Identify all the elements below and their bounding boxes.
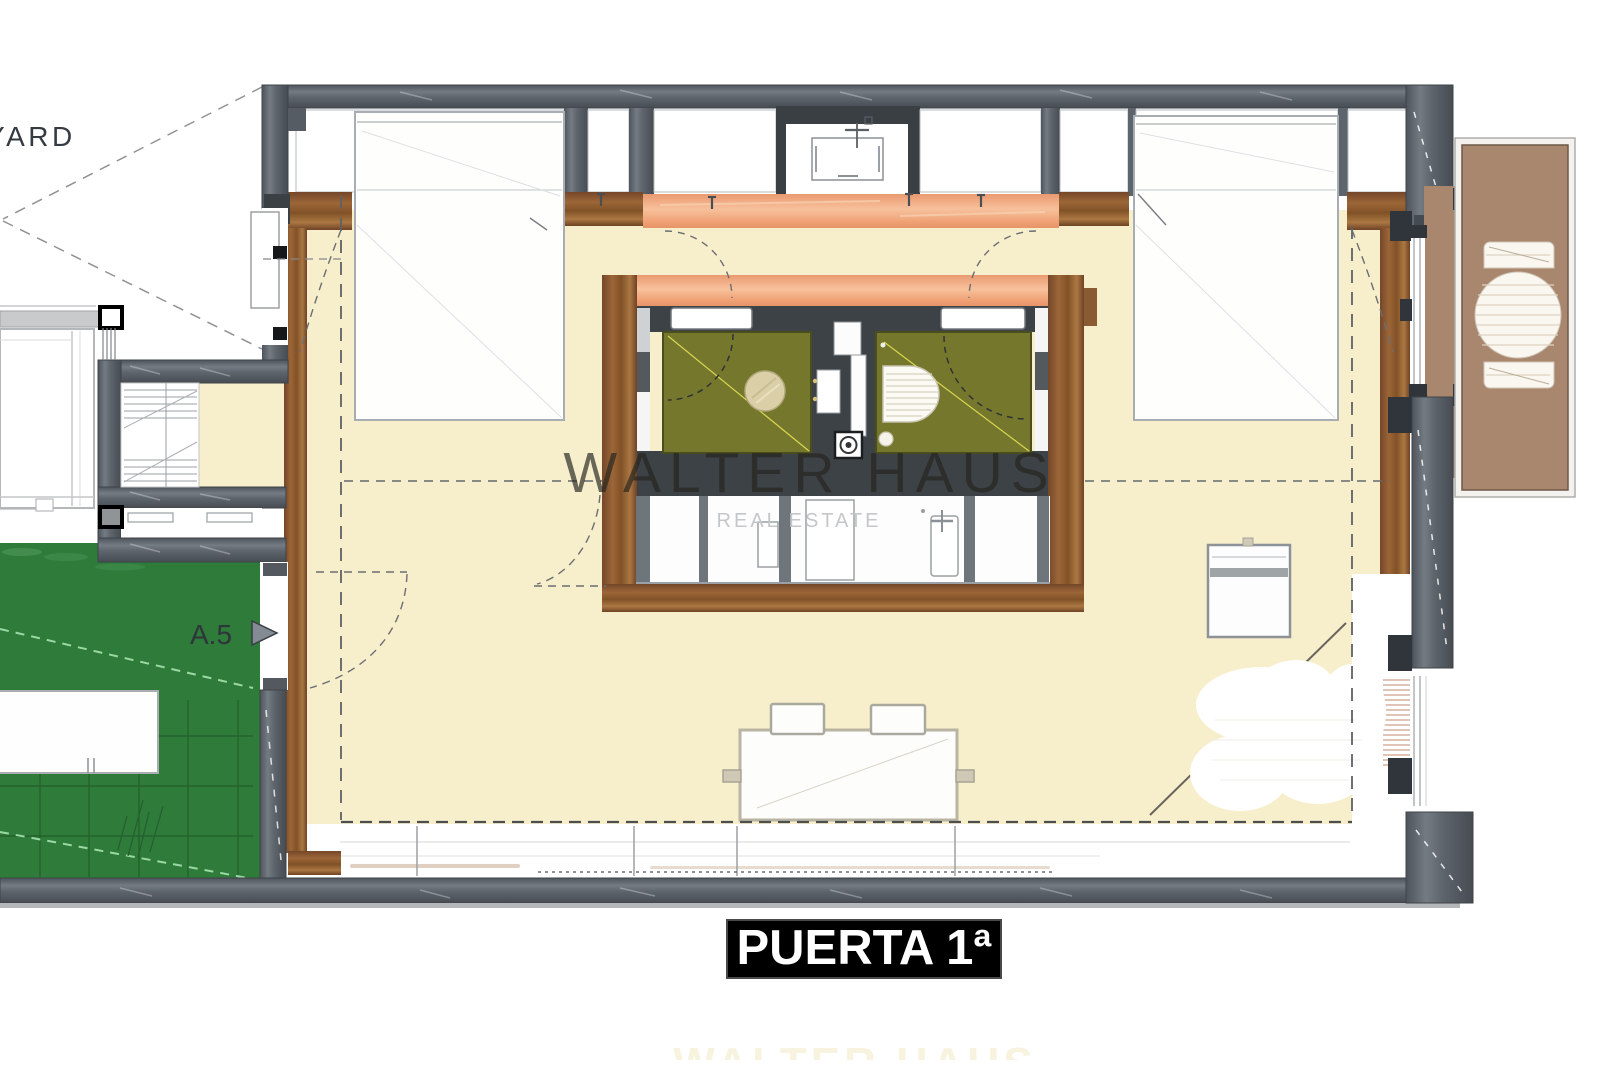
svg-text:PUERTA 1ª: PUERTA 1ª xyxy=(736,921,992,975)
svg-text:A.5: A.5 xyxy=(190,619,232,650)
svg-text:WALTER HAUS: WALTER HAUS xyxy=(563,441,1056,505)
svg-text:YARD: YARD xyxy=(0,121,76,152)
svg-text:REAL ESTATE: REAL ESTATE xyxy=(717,510,882,532)
svg-text:WALTER HAUS: WALTER HAUS xyxy=(673,1039,1036,1060)
